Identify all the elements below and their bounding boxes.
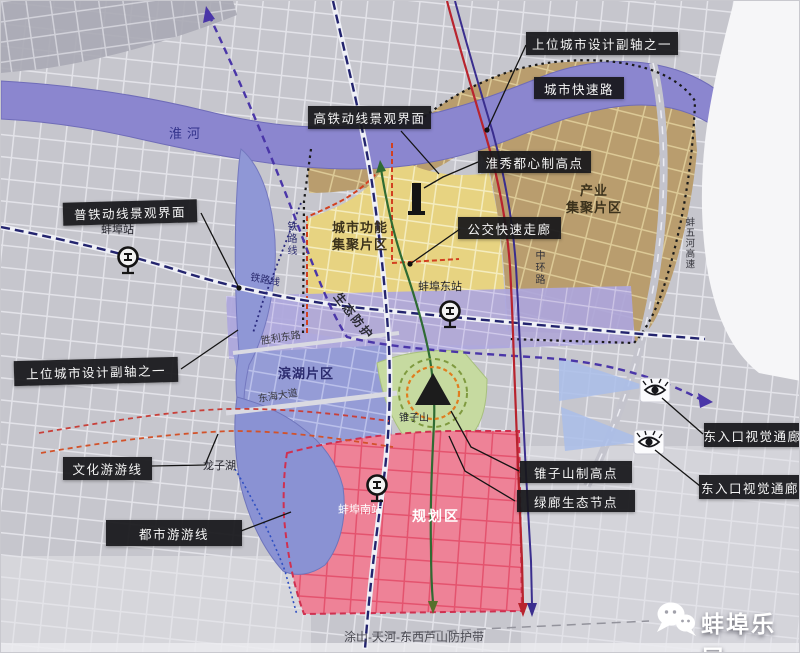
watermark-text: 蚌埠乐居 [701, 605, 799, 653]
planning-map: 上位城市设计副轴之一 城市快速路 高铁动线景观界面 淮秀都心制高点 普铁动线景观… [0, 0, 800, 653]
callout-rail-landscape: 普铁动线景观界面 [63, 199, 198, 225]
huai-river-label: 淮河 [169, 126, 205, 143]
bengbu-east-station-label: 蚌埠东站 [418, 280, 462, 294]
bengbu-station-label: 蚌埠站 [101, 223, 134, 237]
urban-function-zone-label: 城市功能 集聚片区 [328, 220, 392, 254]
callout-city-expressway: 城市快速路 [534, 77, 624, 99]
binhu-zone-label: 滨湖片区 [278, 366, 334, 383]
zhuizishan-label: 锥子山 [399, 412, 429, 425]
callout-brt-corridor: 公交快速走廊 [458, 217, 561, 239]
callout-culture-tour-line: 文化游游线 [63, 457, 152, 480]
viewpoint-eye-icon-1 [640, 378, 670, 402]
protection-belt-label: 涂山-天河-东西芦山防护带 [344, 630, 484, 646]
callout-sub-axis-left: 上位城市设计副轴之一 [14, 357, 179, 386]
map-canvas [1, 1, 800, 653]
callout-urban-tour-line: 都市游游线 [106, 520, 242, 546]
callout-sub-axis-top: 上位城市设计副轴之一 [526, 32, 678, 55]
bengbu-south-station-label: 蚌埠南站 [338, 503, 382, 517]
callout-huaixiu-highpoint: 淮秀都心制高点 [478, 151, 591, 173]
callout-east-visual-corridor-1: 东入口视觉通廊 [704, 423, 800, 447]
planning-zone-label: 规划区 [412, 507, 460, 525]
railway-line-vertical-label: 铁路线 [284, 221, 297, 257]
callout-green-eco-node: 绿廊生态节点 [517, 490, 635, 512]
callout-east-visual-corridor-2: 东入口视觉通廊 [699, 475, 800, 499]
longzihu-label: 龙子湖 [203, 459, 236, 473]
callout-hsr-landscape: 高铁动线景观界面 [308, 106, 431, 129]
middle-ring-road-label: 中环路 [532, 250, 545, 286]
industry-zone-label: 产业 集聚片区 [561, 183, 627, 217]
callout-zhuizishan-highpoint: 锥子山制高点 [520, 461, 632, 483]
viewpoint-eye-icon-2 [634, 430, 664, 454]
bengwu-expressway-label: 蚌五河高速 [682, 217, 694, 270]
